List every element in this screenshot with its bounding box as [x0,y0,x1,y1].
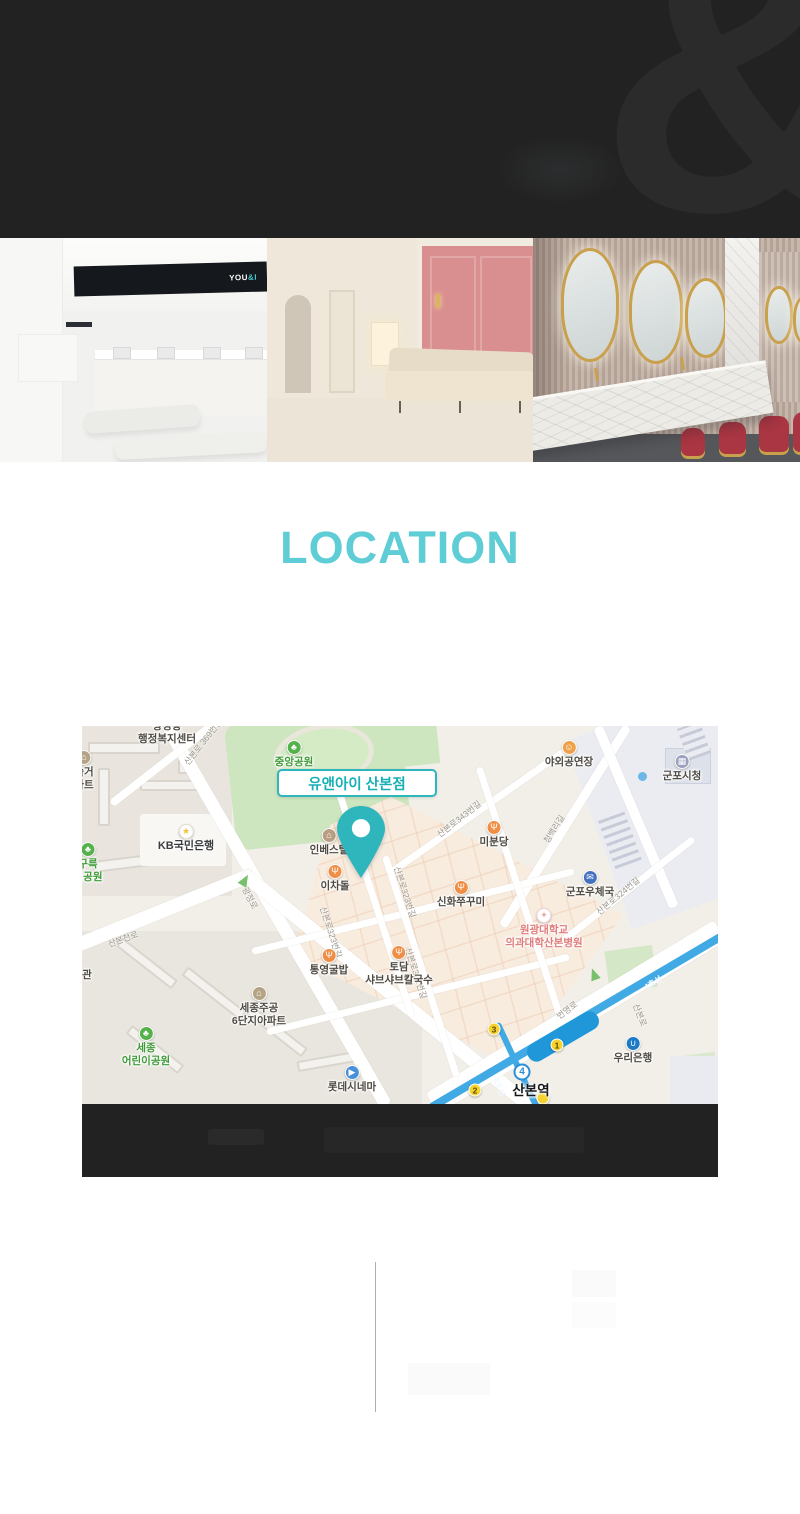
kiosk-monitor [157,347,175,359]
faint-footer-block [408,1363,490,1395]
map-label-text: 이공원 [82,871,102,883]
park-icon: ♣ [139,1026,154,1041]
map-label-text: 롯데시네마 [328,1081,376,1093]
door [329,290,355,393]
faint-footer-block [572,1302,616,1328]
map-label-text: 관 [82,969,92,981]
map-label-text: 이차돌 [321,880,350,892]
stool [719,422,746,454]
faint-footer-block [572,1270,616,1297]
restaurant-icon: Ψ [454,880,469,895]
woori-icon: ∪ [625,1036,640,1051]
sofa-leg [399,401,401,413]
ampersand-watermark: & [599,0,800,238]
map-label: ☺야외공연장 [545,740,593,768]
arch-doorway [285,295,311,393]
map-label-text: 통영굴밥 [310,964,349,976]
map-label: ♣세종어린이공원 [122,1026,170,1068]
map-label-text: 샤브샤브칼국수 [365,974,433,986]
restaurant-icon: Ψ [392,945,407,960]
wall-sconce [436,294,440,308]
sofa-leg [519,401,521,413]
map-label-text: 중앙공원 [275,756,314,768]
map-label-text: 야외공연장 [545,756,593,768]
oval-mirror [629,260,683,364]
map-label: ♣구륵이공원 [82,842,102,884]
footer-divider [375,1262,376,1412]
kiosk-monitor [245,347,263,359]
oval-mirror [765,286,793,344]
park-zone [380,726,441,769]
oval-mirror [561,248,619,362]
map-label-text: 구륵 [82,858,98,870]
marker-brand-text: 유앤아이 [308,773,361,794]
map-label: Ψ신화쭈꾸미 [437,880,485,908]
interior-photo-gallery: YOU&I [0,238,800,462]
bank-kb-icon: ★ [179,824,194,839]
stool [759,416,789,452]
restaurant-icon: Ψ [486,820,501,835]
map-label-text: 신화쭈꾸미 [437,896,485,908]
building-block [670,1056,718,1104]
wall-panel [480,256,532,363]
smiley-icon: ☺ [562,740,577,755]
map-label-text: 6단지아파트 [232,1015,286,1027]
reception-wall-sign [66,322,92,327]
map-pin[interactable] [337,803,385,881]
address-info-bar [82,1104,718,1177]
map-label-text: 파트 [82,779,94,791]
median-arrow [587,967,601,982]
photo-reception: YOU&I [0,238,267,462]
map-label-text: 어린이공원 [122,1055,170,1067]
map-label: Ψ토담샤브샤브칼국수 [365,945,433,987]
map-label-text: 군포우체국 [566,886,614,898]
park-icon: ♣ [286,740,301,755]
sofa-seat [385,371,534,401]
lodging-icon: ⌂ [321,828,336,843]
map-label: ⌂솔거파트 [82,750,94,792]
map-label: ⌂세종주공6단지아파트 [232,986,286,1028]
photo-powder-room [533,238,800,462]
photo-lounge [267,238,534,462]
hero-band: & [0,0,800,238]
fountain-dot [638,772,647,781]
map-label: Ψ통영굴밥 [310,948,349,976]
restaurant-icon: Ψ [321,948,336,963]
map-label-text: 세종 [136,1042,155,1054]
wall-panel [430,256,476,363]
reception-cafe-counter [18,334,78,382]
map-label: ▦군포시청 [663,754,702,782]
kiosk-monitor [113,347,131,359]
map-label: ♣중앙공원 [275,740,314,768]
map-label: +원광대학교의과대학산본병원 [505,908,582,950]
stool [793,412,800,452]
map-label: ▶롯데시네마 [328,1065,376,1093]
map-label: 광정동행정복지센터 [138,726,196,746]
map-label: ∪우리은행 [614,1036,653,1064]
map-label-text: KB국민은행 [158,840,214,853]
map-label: ★KB국민은행 [158,824,214,853]
cinema-icon: ▶ [345,1065,360,1080]
map-label-text: 우리은행 [614,1052,653,1064]
station-name: 산본역 [512,1079,549,1099]
post-icon: ✉ [583,870,598,885]
sofa-leg [459,401,461,413]
kiosk-monitor [203,347,221,359]
map-label-text: 원광대학교 [520,924,568,936]
park-icon: ♣ [82,842,95,857]
map-label-text: 솔거 [82,766,94,778]
apt-icon: ⌂ [251,986,266,1001]
hospital-icon: + [537,908,552,923]
building [98,768,110,826]
subway-exit-badge: 2 [469,1084,482,1097]
map-label-text: 군포시청 [663,770,702,782]
brand-logo: YOU&I [229,272,257,282]
subway-exit-badge: 1 [551,1039,564,1052]
map-label: Ψ미분당 [480,820,509,848]
gold-faucet [594,368,599,381]
map-label: ✉군포우체국 [566,870,614,898]
line-4-badge: 4 [514,1064,531,1081]
civic-icon: ▦ [674,754,689,769]
map-label-text: 행정복지센터 [138,733,196,745]
map-label-text: 광정동 [153,726,182,732]
bench [115,431,267,460]
ghost-text-block [324,1127,584,1153]
page: & YOU&I [0,0,800,1514]
map-label-text: 토담 [389,961,408,973]
map-label-text: 의과대학산본병원 [505,937,582,949]
map-canvas[interactable]: 4 산본역 유앤아이 산본점 광정동행정복지센터♣중앙공원⌂솔거파트☺야외공연장… [82,726,718,1104]
map-label: 관 [82,969,92,981]
apt-icon: ⌂ [82,750,91,765]
oval-mirror [685,278,727,358]
section-title: LOCATION [0,522,800,574]
marker-branch-text: 산본점 [366,773,406,794]
map-label-text: 미분당 [480,836,509,848]
road-label: 산본로 [630,1002,650,1028]
stool [681,428,705,456]
map-marker-label[interactable]: 유앤아이 산본점 [277,769,437,797]
map-label-text: 세종주공 [240,1002,279,1014]
subway-exit-badge: 3 [488,1023,501,1036]
gold-faucet [680,357,685,370]
ghost-text-block [208,1129,264,1145]
reception-signage-band: YOU&I [74,261,267,296]
